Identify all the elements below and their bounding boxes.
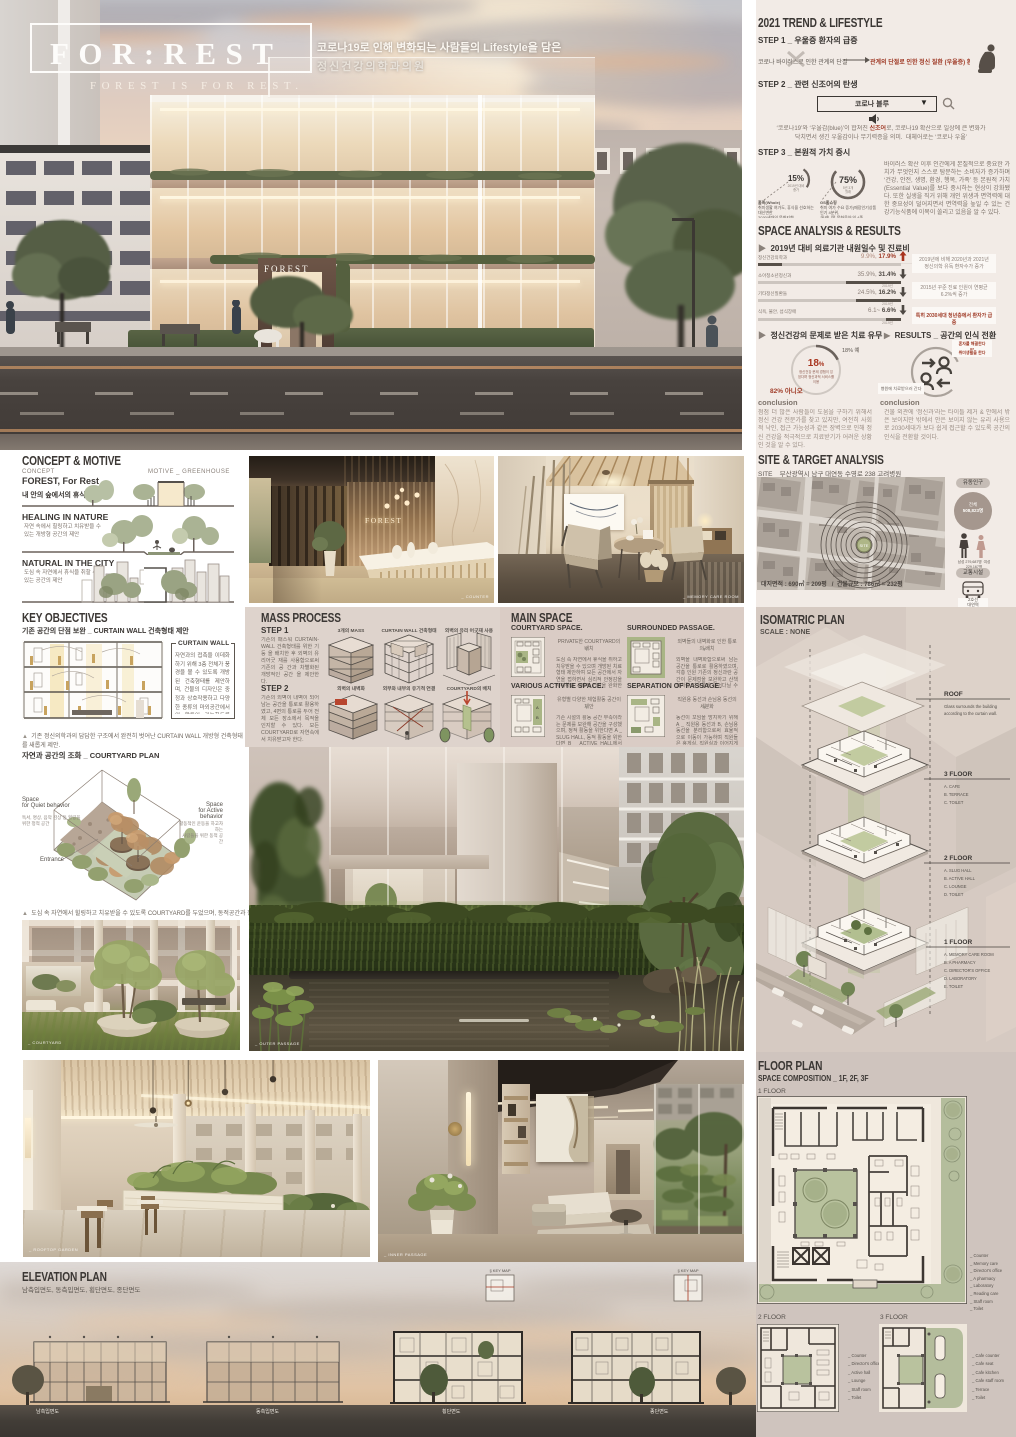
svg-text:A: A	[536, 705, 539, 710]
svg-text:C. TOILET: C. TOILET	[944, 800, 964, 805]
svg-text:SITE: SITE	[860, 543, 869, 548]
svg-text:B. ACTIVE HALL: B. ACTIVE HALL	[944, 876, 976, 881]
svg-text:었다며 정신과적 서비스를: 었다며 정신과적 서비스를	[798, 374, 834, 379]
svg-text:D. LABORATORY: D. LABORATORY	[944, 976, 977, 981]
svg-text:A. SLUG HALL: A. SLUG HALL	[944, 868, 972, 873]
svg-text:E. TOILET: E. TOILET	[944, 984, 964, 989]
svg-text:이용: 이용	[813, 379, 819, 384]
svg-text:Glass surrounds the building: Glass surrounds the building	[944, 704, 998, 709]
svg-text:§ KEY MAP: § KEY MAP	[489, 1268, 510, 1273]
svg-text:according to the curtain wall.: according to the curtain wall.	[944, 711, 997, 716]
svg-text:B: B	[536, 715, 539, 720]
svg-text:3 FLOOR: 3 FLOOR	[944, 771, 972, 778]
svg-text:2 FLOOR: 2 FLOOR	[944, 855, 972, 862]
svg-text:§ KEY MAP: § KEY MAP	[677, 1268, 698, 1273]
svg-text:18%: 18%	[808, 358, 825, 369]
svg-text:A. MEMORY CARE ROOM: A. MEMORY CARE ROOM	[944, 952, 994, 957]
svg-text:C. LOUNGE: C. LOUNGE	[944, 884, 967, 889]
svg-text:정신건강 문제 경험이 있: 정신건강 문제 경험이 있	[799, 369, 833, 374]
svg-text:1 FLOOR: 1 FLOOR	[944, 939, 972, 946]
svg-text:A. CAFE: A. CAFE	[944, 784, 960, 789]
svg-text:D. TOILET: D. TOILET	[944, 892, 964, 897]
svg-text:C. DIRECTOR'S OFFICE: C. DIRECTOR'S OFFICE	[944, 968, 990, 973]
svg-text:ROOF: ROOF	[944, 691, 963, 698]
svg-text:대지면적 : 690㎡ = 209평 / 건물규모 :: 대지면적 : 690㎡ = 209평 / 건물규모 : 786㎡ = 232평	[761, 580, 903, 588]
svg-text:B. TERRACE: B. TERRACE	[944, 792, 969, 797]
svg-text:B. A PHARMACY: B. A PHARMACY	[944, 960, 976, 965]
